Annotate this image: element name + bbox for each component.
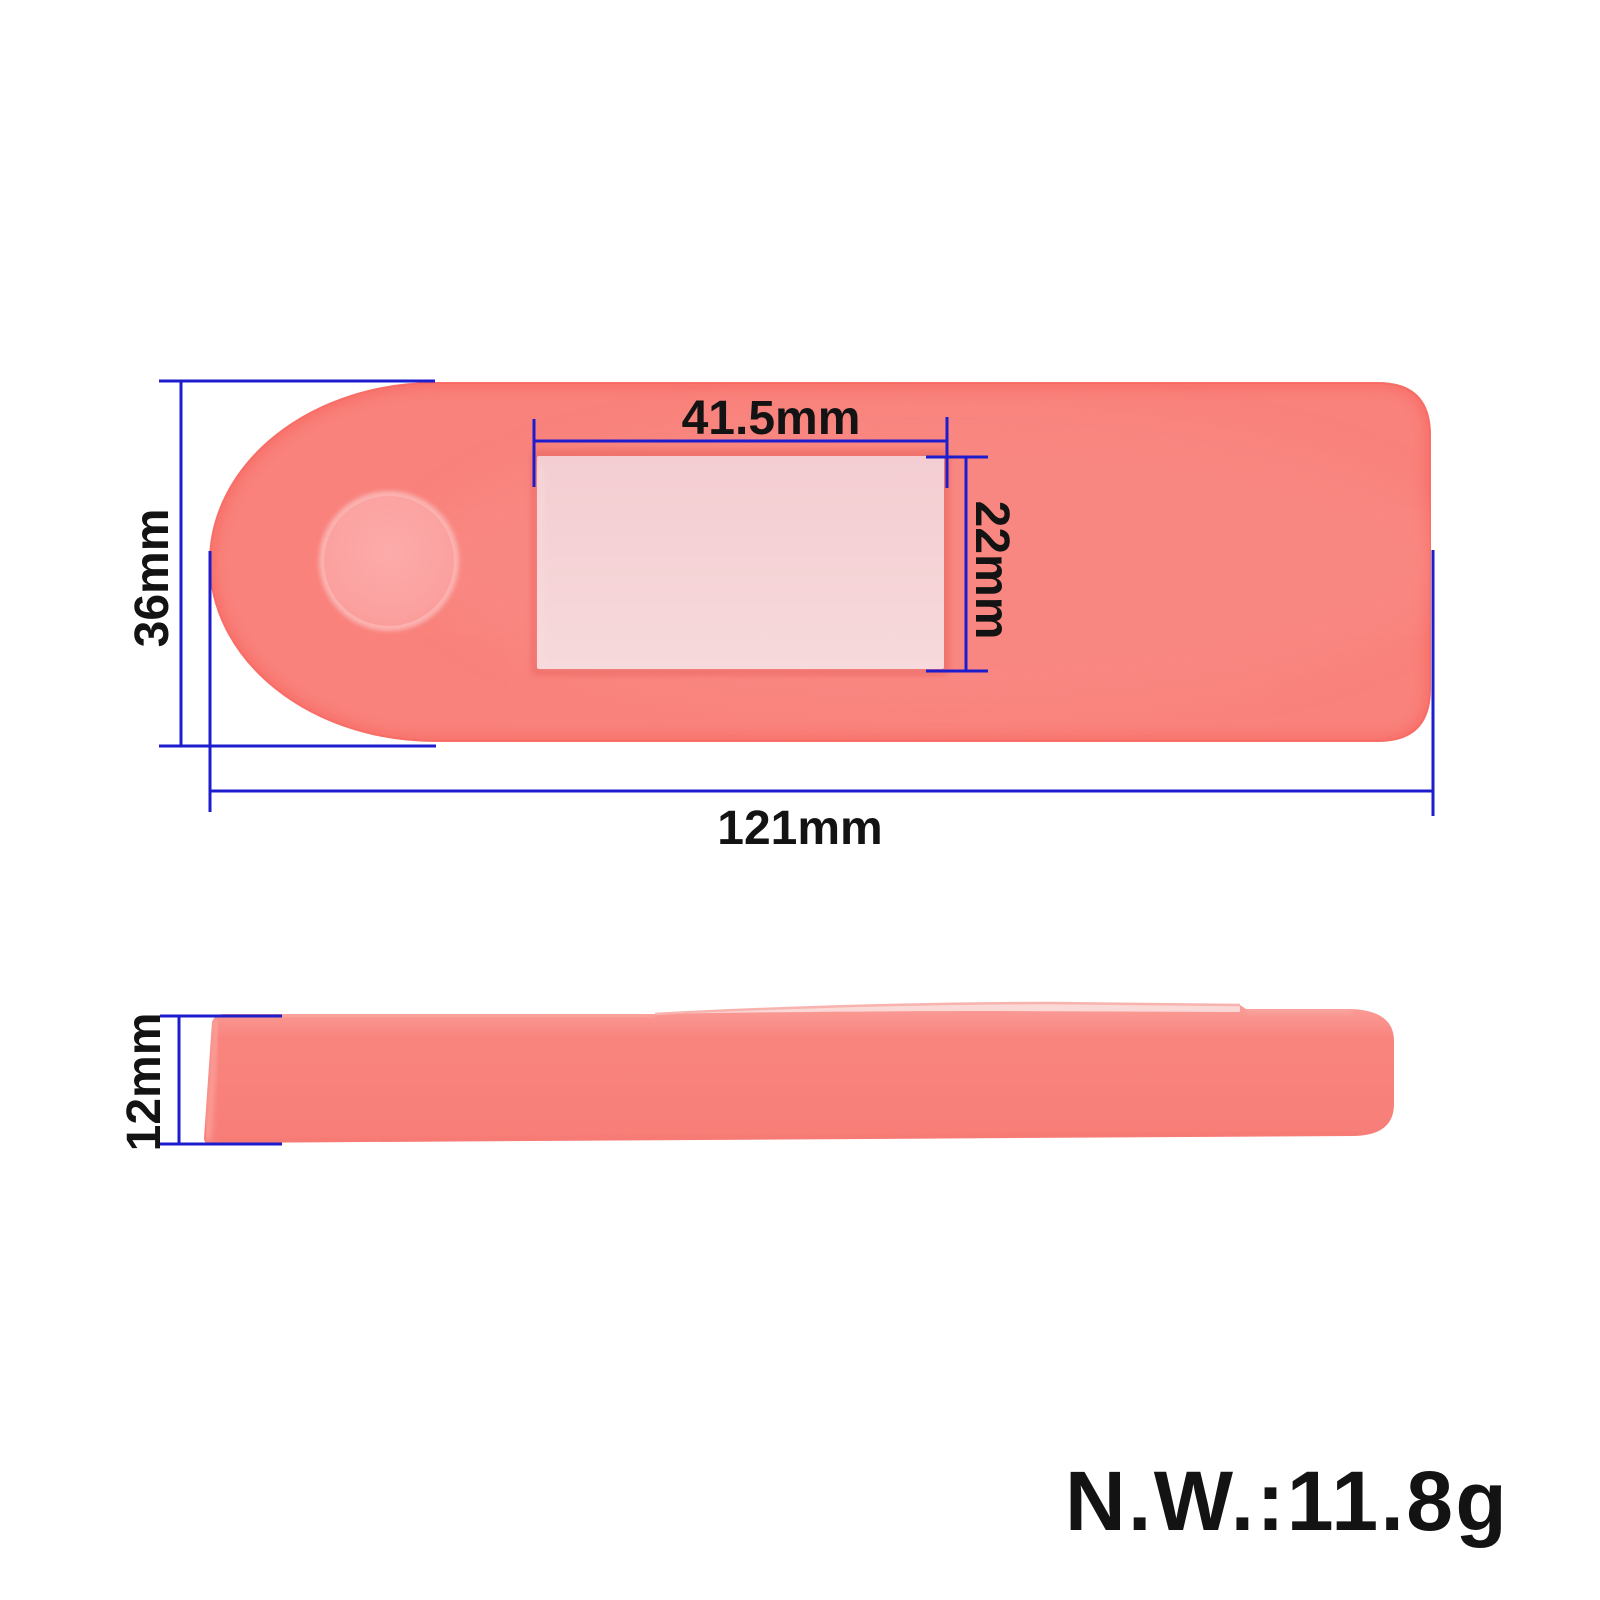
svg-text:36mm: 36mm — [126, 509, 179, 648]
svg-text:22mm: 22mm — [965, 501, 1018, 640]
svg-text:41.5mm: 41.5mm — [682, 392, 861, 445]
svg-text:12mm: 12mm — [118, 1013, 171, 1152]
svg-text:N.W.:11.8g: N.W.:11.8g — [1065, 1454, 1509, 1548]
svg-text:121mm: 121mm — [717, 802, 882, 855]
